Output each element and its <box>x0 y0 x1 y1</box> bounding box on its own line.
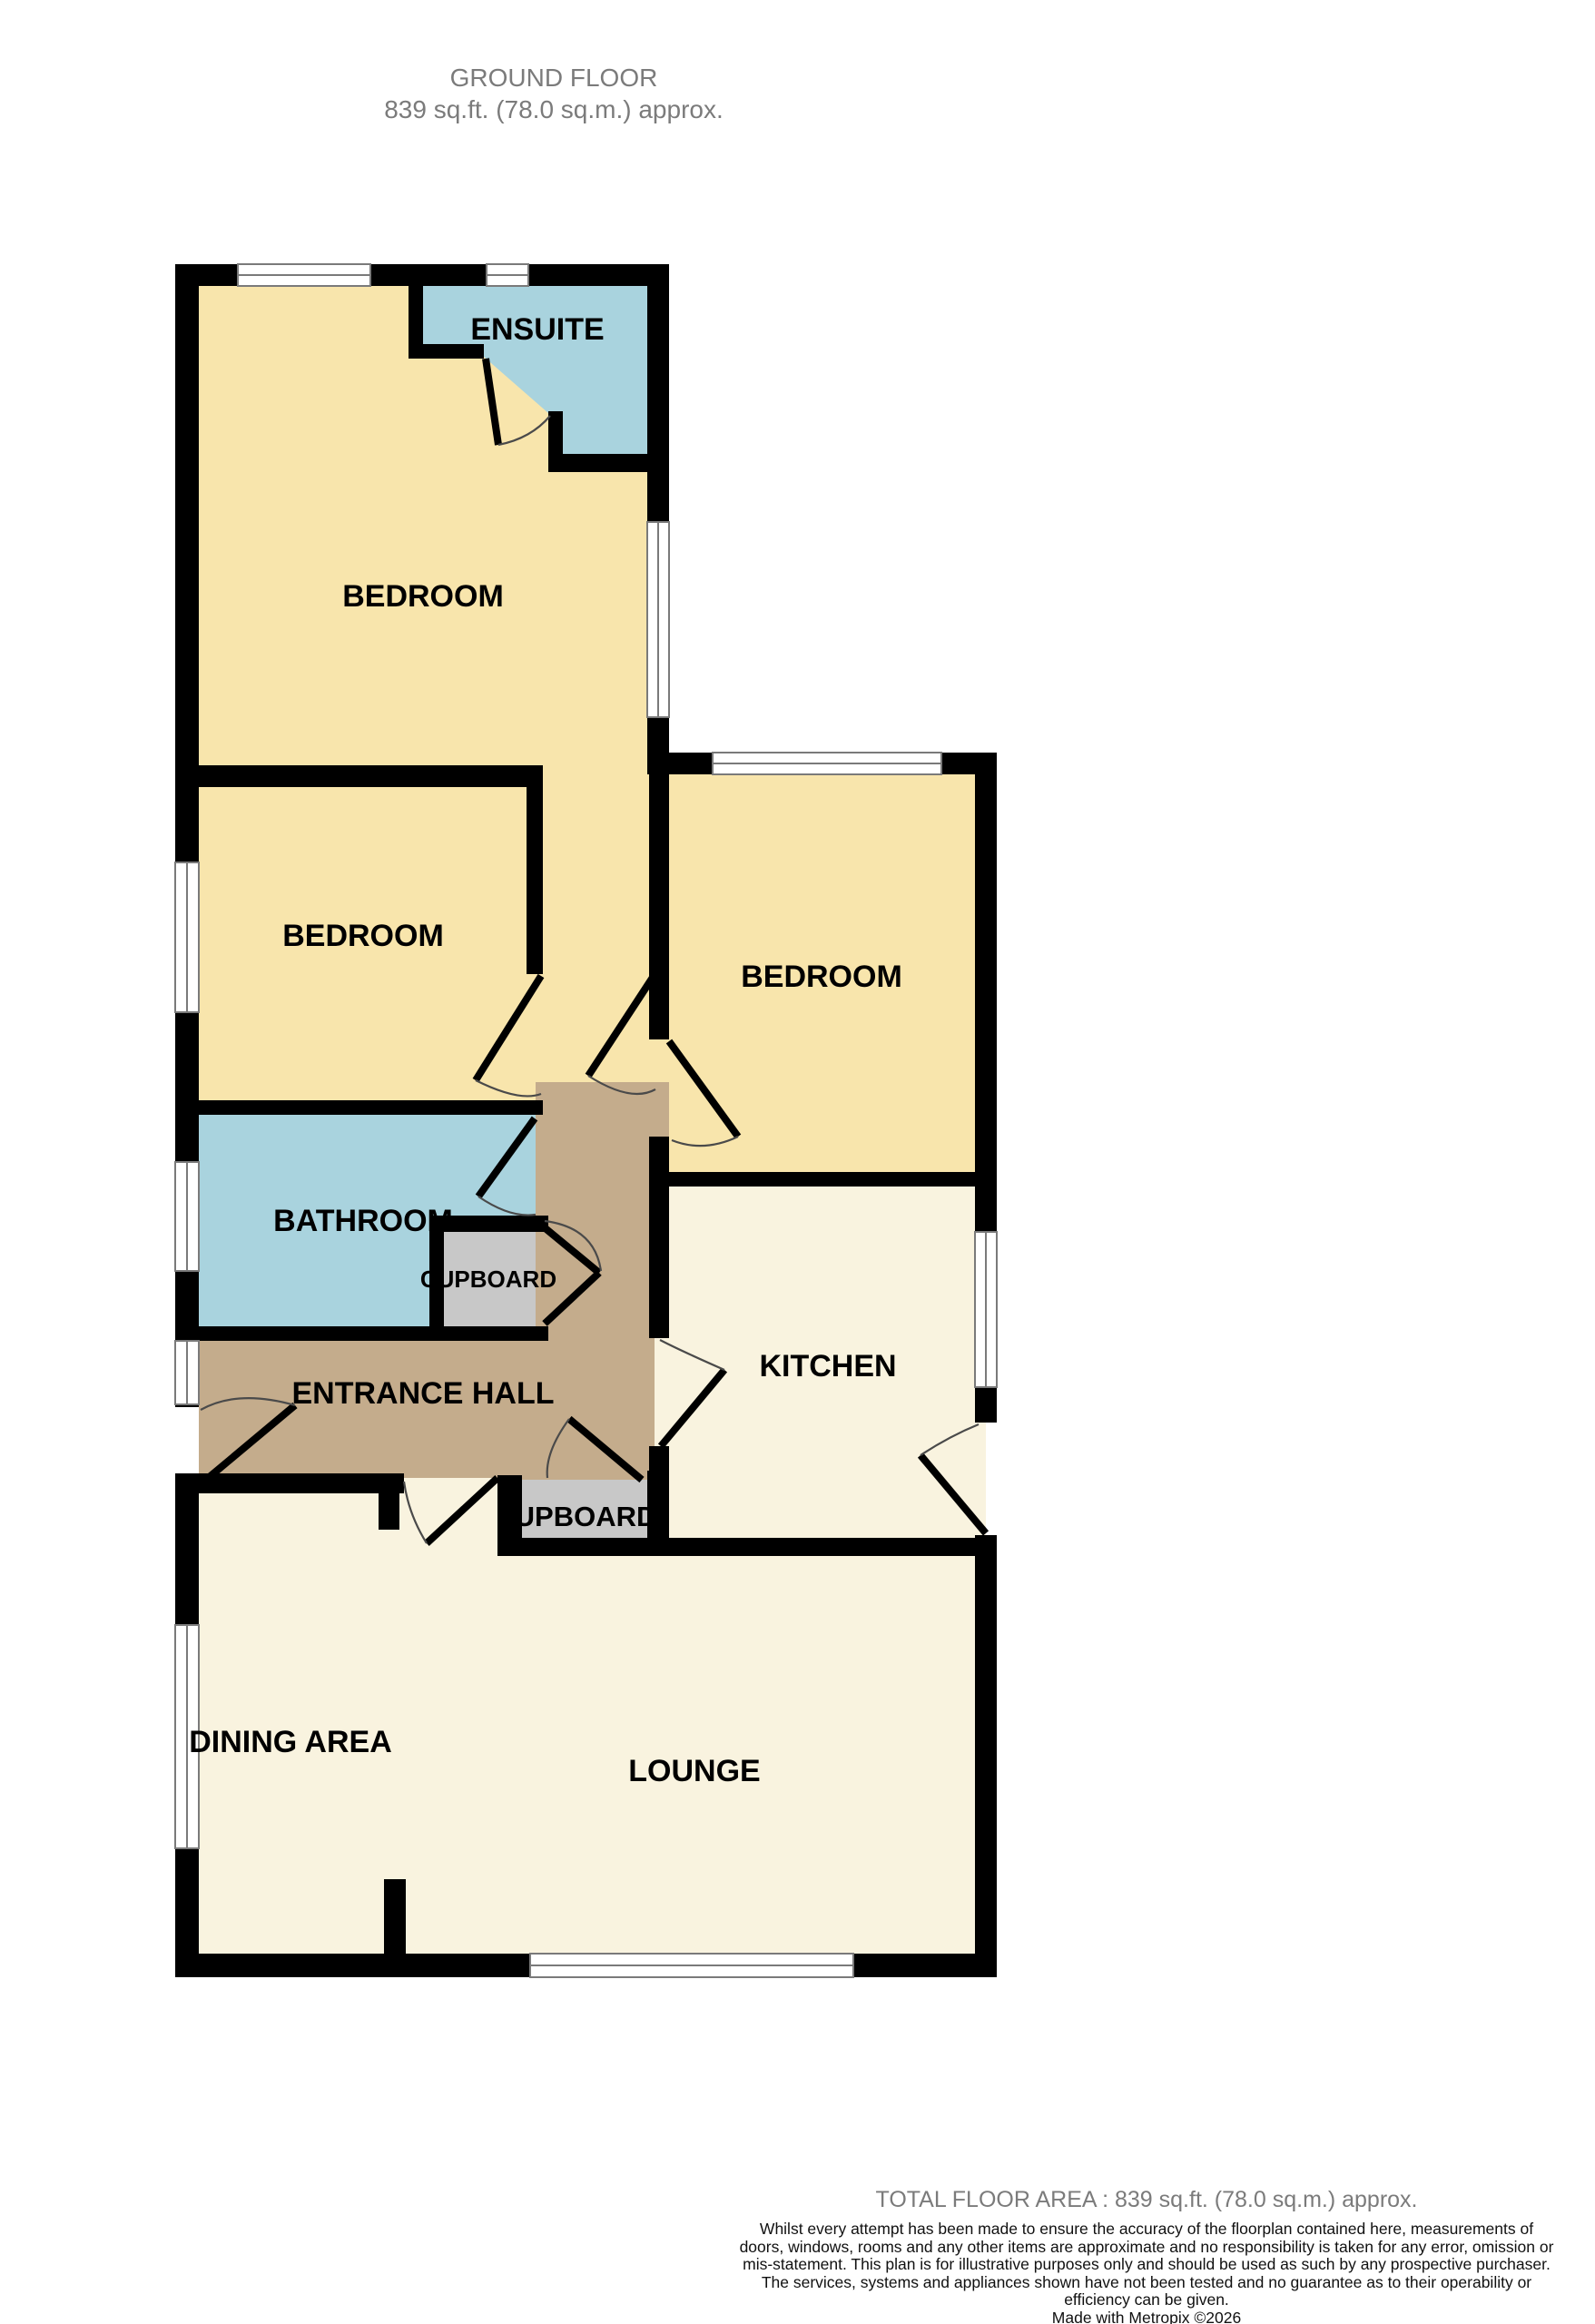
wall-right-outer-lower <box>975 1535 997 1977</box>
total-floor-area: TOTAL FLOOR AREA : 839 sq.ft. (78.0 sq.m… <box>738 2186 1555 2213</box>
made-with-credit: Made with Metropix ©2026 <box>738 2309 1555 2324</box>
window-kitchen-right <box>975 1232 997 1387</box>
label-entrance-hall: ENTRANCE HALL <box>292 1376 555 1411</box>
floorplan-page: GROUND FLOOR 839 sq.ft. (78.0 sq.m.) app… <box>0 0 1595 2324</box>
wall-kitchen-bottom <box>497 1538 997 1556</box>
front-door-opening <box>175 1407 199 1473</box>
wall-stub-hall-dining <box>379 1473 399 1530</box>
window-hall-left <box>175 1341 199 1404</box>
floorplan-drawing: ENSUITE BEDROOM BEDROOM BEDROOM BATHROOM… <box>0 0 1595 2324</box>
label-ensuite: ENSUITE <box>470 312 604 347</box>
label-bathroom: BATHROOM <box>273 1204 453 1238</box>
wall-bathroom-bottom <box>175 1326 548 1341</box>
window-bedroom2-left <box>175 862 199 1012</box>
label-cupboard-1: CUPBOARD <box>420 1265 556 1293</box>
label-cupboard-2: UPBOARD <box>515 1501 657 1532</box>
wall-stub-dining-lounge <box>384 1879 406 1977</box>
wall-bedroom3-left-upper <box>649 774 669 1039</box>
window-bedroom1-top <box>238 264 370 286</box>
wall-topblock-right-upper <box>647 264 669 522</box>
label-dining-area: DINING AREA <box>189 1725 392 1759</box>
floors <box>199 286 986 1977</box>
wall-corridor-right-mid <box>649 1137 669 1338</box>
label-bedroom-2: BEDROOM <box>282 919 444 953</box>
wall-right-outer-mid <box>975 1387 997 1423</box>
label-bedroom-3: BEDROOM <box>741 960 902 994</box>
floorplan-footer: TOTAL FLOOR AREA : 839 sq.ft. (78.0 sq.m… <box>738 2186 1555 2324</box>
wall-right-outer-upper <box>975 753 997 1232</box>
wall-ensuite-bottom <box>548 454 669 472</box>
wall-bathroom-top <box>175 1100 543 1115</box>
window-ensuite-top <box>487 264 528 286</box>
disclaimer-text: Whilst every attempt has been made to en… <box>738 2221 1555 2309</box>
wall-bedroom2-right <box>527 765 543 974</box>
window-bedroom3-top <box>713 753 941 774</box>
window-lounge-bottom <box>530 1954 853 1977</box>
hall-corridor-upper-floor <box>536 765 669 1082</box>
wall-ensuite-stub <box>548 411 563 454</box>
wall-bedroom1-bedroom2-divider <box>175 765 543 787</box>
label-bedroom-1: BEDROOM <box>342 579 504 614</box>
label-lounge: LOUNGE <box>628 1754 760 1788</box>
window-bedroom1-right <box>647 522 669 717</box>
window-bathroom-left <box>175 1162 199 1271</box>
label-kitchen: KITCHEN <box>759 1349 896 1384</box>
wall-bedroom3-bottom <box>649 1172 997 1187</box>
